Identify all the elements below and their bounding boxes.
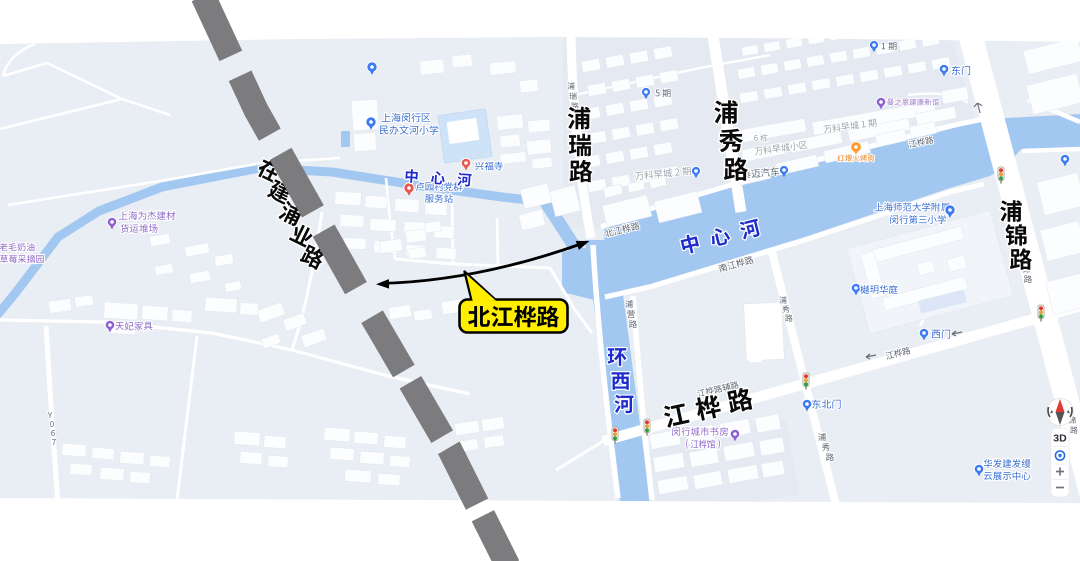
svg-text:3D: 3D xyxy=(1053,433,1067,445)
